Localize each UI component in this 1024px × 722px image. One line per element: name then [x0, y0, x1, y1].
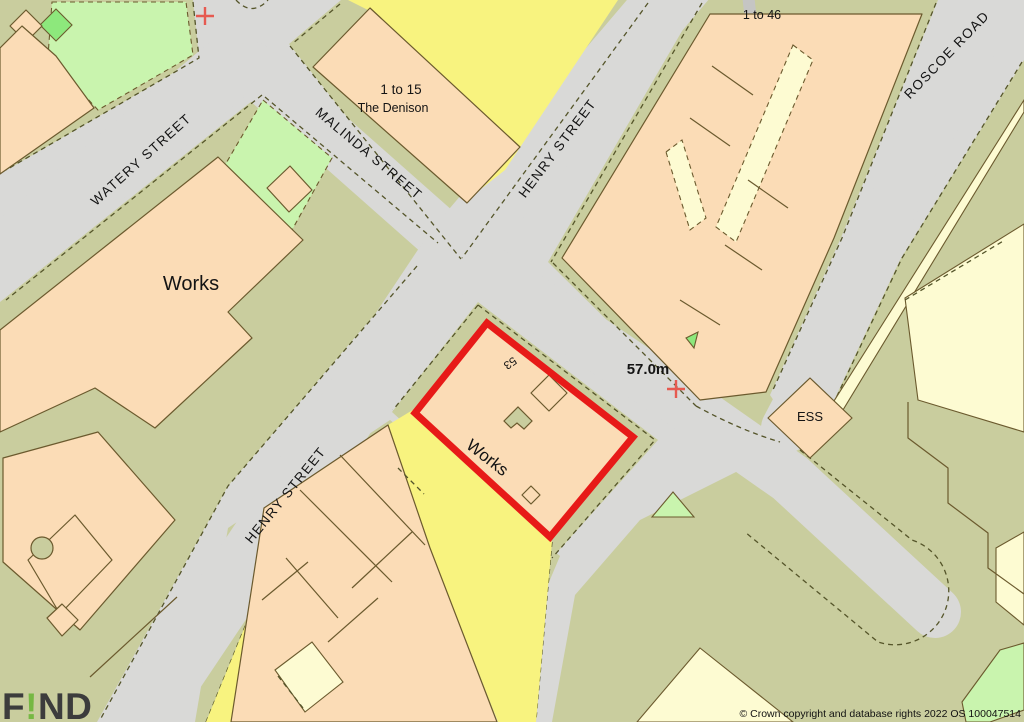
find-logo-nd: ND	[38, 686, 92, 722]
map-viewport: WATERY STREET MALINDA STREET HENRY STREE…	[0, 0, 1024, 722]
find-logo-f: F	[2, 686, 25, 722]
denison-name-label: The Denison	[358, 101, 429, 115]
copyright-attribution: © Crown copyright and database rights 20…	[739, 708, 1021, 720]
flats-range-label: 1 to 46	[743, 8, 781, 22]
spot-height-label: 57.0m	[627, 361, 670, 378]
find-logo: F!ND	[2, 686, 92, 722]
denison-range-label: 1 to 15	[380, 82, 421, 97]
os-map-canvas: WATERY STREET MALINDA STREET HENRY STREE…	[0, 0, 1024, 722]
building-notch	[31, 537, 53, 559]
works-west-label: Works	[163, 273, 219, 295]
find-logo-exclamation-icon: !	[25, 686, 38, 722]
ess-label: ESS	[797, 409, 823, 424]
